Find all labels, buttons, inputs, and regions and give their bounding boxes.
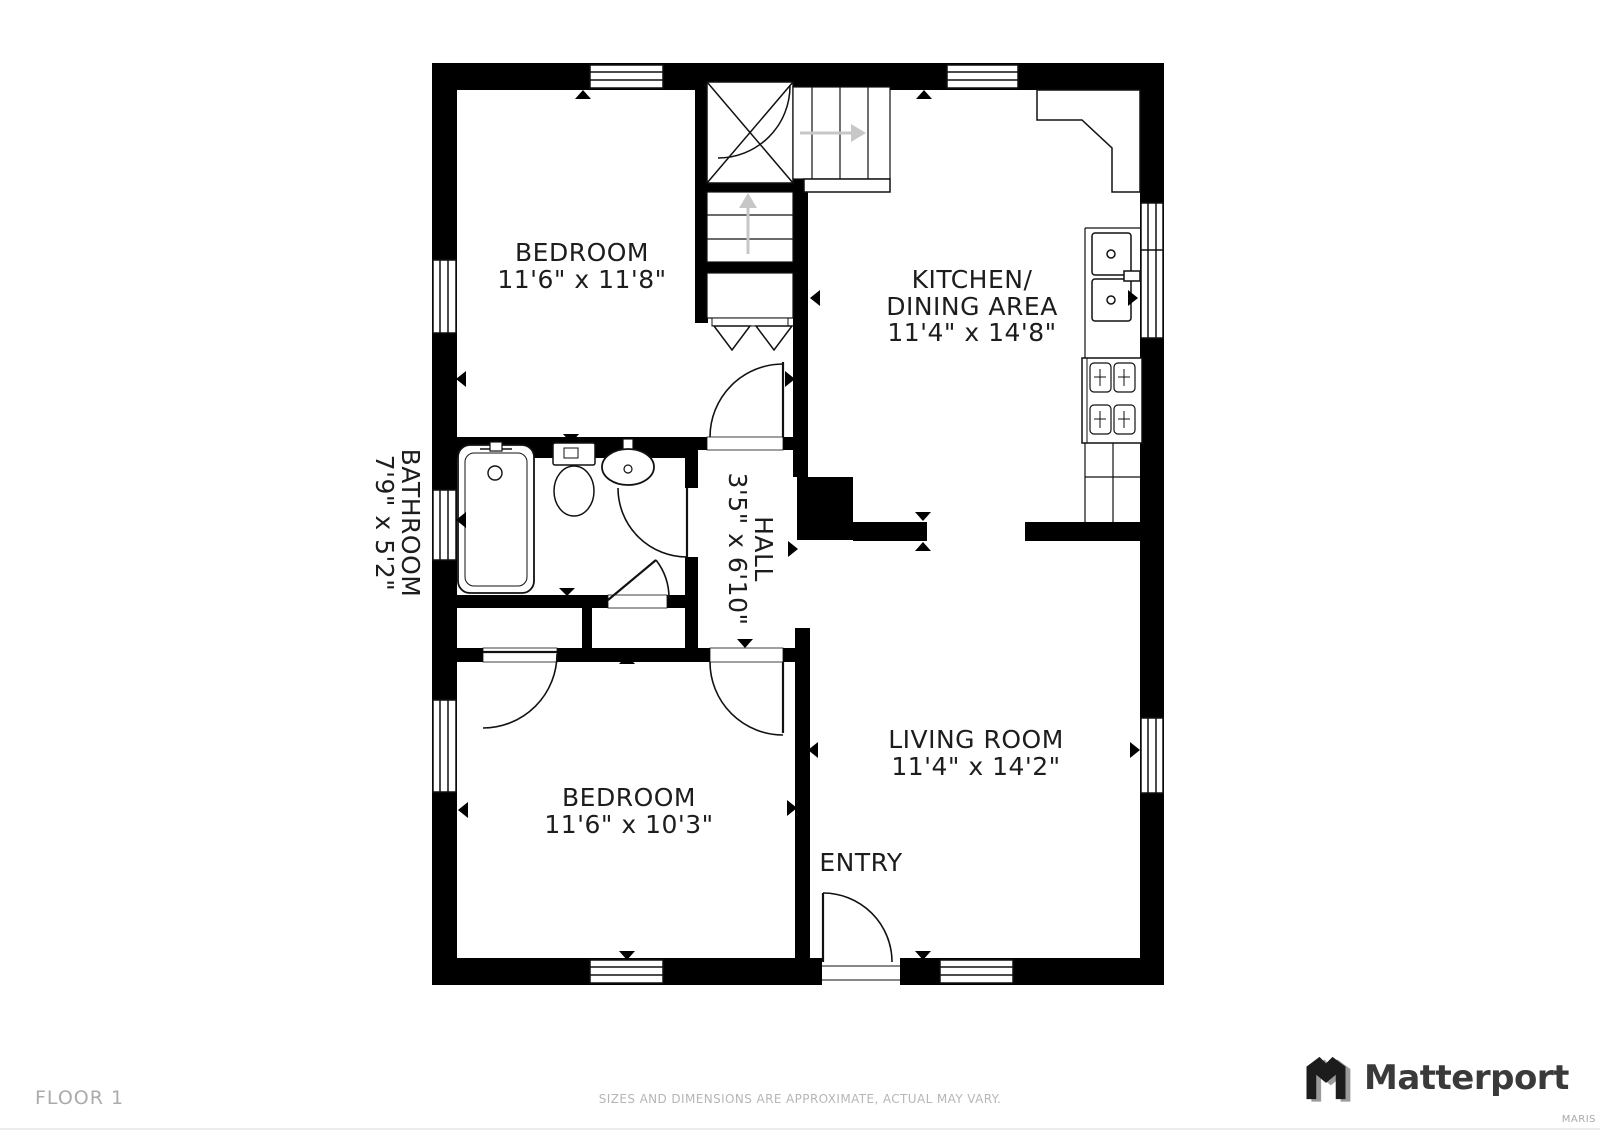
door-swing-icon — [483, 648, 557, 728]
kitchen-label-line2: DINING AREA — [886, 292, 1058, 321]
wall-bedroom2-living — [795, 628, 810, 960]
bathroom-label: BATHROOM — [396, 449, 425, 598]
window-icon — [433, 700, 456, 792]
wall-bedroom2-top-b — [557, 648, 710, 662]
window-icon — [590, 65, 663, 88]
hall-label: HALL — [749, 516, 778, 582]
kitchen-label-line1: KITCHEN/ — [912, 265, 1033, 294]
wall-kitchen-south-left — [853, 522, 927, 541]
direction-marker-icon — [1128, 290, 1138, 306]
bedroom1-dims: 11'6" x 11'8" — [497, 265, 666, 294]
living-room-label: LIVING ROOM — [888, 725, 1064, 754]
window-icon — [1141, 718, 1163, 793]
stairs-down-icon — [707, 82, 793, 183]
bedroom2-dims: 11'6" x 10'3" — [544, 810, 713, 839]
wall-hall-right — [793, 177, 808, 477]
direction-marker-icon — [810, 290, 820, 306]
direction-marker-icon — [456, 371, 466, 387]
window-icon — [590, 960, 663, 983]
bathtub-icon — [458, 442, 534, 593]
attribution-text: MARIS — [1562, 1114, 1596, 1125]
window-icon — [433, 490, 456, 560]
bathroom-label-group: BATHROOM 7'9" x 5'2" — [370, 449, 425, 598]
wall-bedroom2-top-a — [448, 648, 483, 662]
wall-closet-divider — [582, 608, 592, 648]
wall-kitchen-south-right — [1025, 522, 1142, 541]
door-swing-icon — [710, 648, 783, 735]
direction-marker-icon — [1130, 742, 1140, 758]
door-swing-icon — [608, 560, 669, 608]
wall-vestibule-stub-right — [783, 437, 793, 450]
window-icon — [947, 65, 1018, 88]
wall-bathroom-bottom-left — [450, 595, 608, 608]
faucet-icon — [1124, 271, 1140, 281]
direction-marker-icon — [915, 542, 931, 551]
toilet-icon — [553, 443, 595, 516]
matterport-logo: Matterport — [1300, 1052, 1569, 1104]
wall-bedroom1-right — [695, 90, 708, 323]
window-icon — [1141, 203, 1163, 338]
kitchen-counter-corner — [1037, 90, 1140, 192]
direction-marker-icon — [788, 541, 798, 557]
door-swing-icon — [618, 488, 699, 557]
walls — [432, 63, 1164, 985]
wall-vestibule-stub-left — [695, 437, 707, 450]
bedroom2-label: BEDROOM — [562, 783, 696, 812]
under-stair-closet — [707, 273, 793, 350]
bathroom-dims: 7'9" x 5'2" — [370, 455, 399, 592]
window-icon — [433, 260, 456, 333]
stove-icon — [1082, 358, 1142, 443]
wall-outer-right — [1140, 63, 1164, 985]
bedroom1-label: BEDROOM — [515, 238, 649, 267]
floor-plan: BEDROOM 11'6" x 11'8" KITCHEN/ DINING AR… — [0, 0, 1600, 1130]
matterport-wordmark: Matterport — [1364, 1058, 1569, 1098]
kitchen-sink-icon — [1092, 233, 1140, 321]
window-icon — [940, 960, 1013, 983]
bifold-door-icon — [714, 326, 750, 350]
wall-kitchen-block — [797, 477, 853, 540]
kitchen-dims: 11'4" x 14'8" — [887, 318, 1056, 347]
stair-landing — [804, 179, 890, 192]
matterport-m-icon — [1300, 1052, 1352, 1104]
wall-outer-bottom — [432, 958, 1163, 985]
direction-marker-icon — [458, 802, 468, 818]
direction-marker-icon — [737, 639, 753, 648]
wall-bathroom-bottom-right — [667, 595, 698, 608]
hall-dims: 3'5" x 6'10" — [723, 473, 752, 626]
bathroom-fixtures — [458, 439, 654, 593]
hall-label-group: HALL 3'5" x 6'10" — [723, 473, 778, 626]
door-swing-icon — [707, 362, 783, 450]
wall-stair-north-bottom — [707, 262, 797, 273]
wall-outer-top — [432, 63, 1163, 90]
entry-label: ENTRY — [819, 848, 903, 877]
direction-marker-icon — [575, 90, 591, 99]
bifold-door-icon — [756, 326, 792, 350]
direction-marker-icon — [916, 90, 932, 99]
living-room-dims: 11'4" x 14'2" — [891, 752, 1060, 781]
entry-door-icon — [822, 893, 900, 985]
direction-marker-icon — [915, 512, 931, 521]
wall-stair-box-bottom — [707, 183, 793, 192]
direction-marker-icon — [559, 588, 575, 596]
